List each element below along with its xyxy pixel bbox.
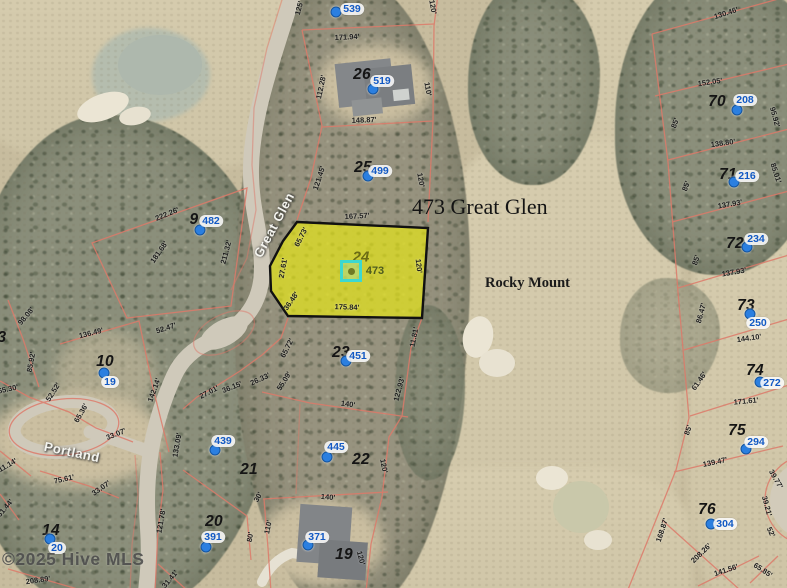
dimension-label: 133.09': [170, 432, 183, 458]
listing-pin[interactable]: [732, 105, 743, 116]
listing-pin-label[interactable]: 371: [305, 531, 329, 543]
dimension-label: 140': [320, 492, 335, 502]
dimension-label: 152.05': [697, 76, 723, 88]
dimension-label: 125': [293, 0, 305, 16]
dimension-label: 171.61': [733, 395, 758, 406]
listing-pin-label[interactable]: 391: [201, 531, 225, 543]
dimension-label: 30': [252, 490, 265, 503]
dimension-label: 27.01': [198, 383, 220, 401]
dimension-label: 141.56': [713, 562, 739, 578]
marker-dot-icon: [348, 268, 355, 275]
map-title: 473 Great Glen: [412, 194, 548, 220]
dimension-label: 65.72': [278, 337, 295, 359]
dimension-label: 27.61': [277, 257, 289, 279]
lot-number: 22: [352, 451, 370, 469]
dimension-label: 171.94': [334, 32, 359, 42]
dimension-label: 36.15': [221, 379, 243, 395]
listing-pin[interactable]: [322, 452, 333, 463]
dimension-label: 95.92': [768, 106, 782, 128]
listing-pin-label[interactable]: 272: [760, 377, 784, 389]
dimension-label: 139.47': [702, 455, 728, 469]
dimension-label: 120': [355, 550, 367, 566]
dimension-label: 65.73': [292, 226, 309, 248]
highlighted-parcel-marker-icon[interactable]: [340, 260, 362, 282]
dimension-label: 52.52': [44, 381, 63, 403]
listing-pin-label[interactable]: 208: [733, 94, 757, 106]
dimension-label: 26.33': [249, 371, 271, 388]
listing-pin-label[interactable]: 539: [340, 3, 364, 15]
dimension-label: 140': [340, 399, 355, 410]
listing-pin-label[interactable]: 294: [744, 436, 768, 448]
dimension-label: 85.01': [769, 162, 784, 184]
dimension-label: 122.93': [391, 376, 406, 402]
listing-pin-label[interactable]: 482: [199, 215, 223, 227]
listing-pin-label[interactable]: 234: [744, 233, 768, 245]
listing-pin-label[interactable]: 439: [211, 435, 235, 447]
dimension-label: 85': [680, 180, 692, 193]
dimension-label: 121.45': [311, 165, 327, 191]
dimension-label: 120': [378, 458, 390, 474]
dimension-label: 136.49': [78, 326, 104, 341]
dimension-label: 120': [427, 0, 438, 15]
dimension-label: 52.47': [155, 321, 177, 336]
plat-map-screenshot[interactable]: 3910141920212223252670717273747576125'12…: [0, 0, 787, 588]
dimension-label: 31.41': [160, 568, 180, 588]
listing-pin-label[interactable]: 445: [324, 441, 348, 453]
lot-number: 76: [698, 501, 716, 519]
dimension-label: 144.10': [736, 332, 762, 344]
mls-watermark: ©2025 Hive MLS: [2, 549, 144, 570]
listing-pin-label[interactable]: 250: [746, 317, 770, 329]
dimension-label: 120': [415, 172, 426, 188]
dimension-label: 65.30': [0, 382, 19, 395]
dimension-label: 75.61': [53, 472, 75, 485]
dimension-label: 110': [422, 81, 433, 96]
dimension-label: 85.92': [25, 351, 37, 373]
dimension-label: 86.47': [694, 302, 708, 324]
lot-number: 20: [205, 513, 223, 531]
region-label: Rocky Mount: [485, 275, 570, 292]
listing-pin-label[interactable]: 19: [101, 376, 119, 388]
dimension-label: 137.93': [717, 197, 743, 210]
dimension-label: 181.68': [148, 239, 170, 264]
dimension-label: 85': [690, 254, 702, 266]
dimension-label: 33.07': [105, 426, 127, 442]
dimension-label: 80': [245, 531, 256, 543]
dimension-label: 110': [262, 519, 274, 534]
street-name: Great Glen: [251, 190, 298, 260]
dimension-label: 148.87': [351, 115, 376, 125]
street-name: Portland: [43, 439, 102, 465]
dimension-label: 167.57': [344, 211, 369, 221]
dimension-label: 65.36': [72, 402, 90, 424]
dimension-label: 120': [414, 258, 425, 273]
dimension-label: 61.44': [0, 497, 15, 519]
dimension-label: 111.14': [0, 456, 19, 476]
dimension-label: 137.93': [721, 265, 747, 278]
dimension-label: 121.78': [154, 508, 167, 534]
listing-pin-label[interactable]: 499: [368, 165, 392, 177]
dimension-label: 208.26': [689, 541, 713, 565]
dimension-label: 98.08': [16, 305, 36, 327]
dimension-label: 208.89': [25, 574, 51, 586]
dimension-label: 85': [669, 117, 681, 130]
dimension-label: 33.07': [90, 478, 112, 497]
dimension-label: 11.81': [408, 326, 421, 348]
lot-number: 70: [708, 93, 726, 111]
dimension-label: 52': [765, 526, 777, 539]
dimension-label: 168.87': [654, 517, 670, 543]
listing-pin-label[interactable]: 216: [735, 170, 759, 182]
dimension-label: 36.48': [281, 290, 300, 312]
listing-pin-label[interactable]: 451: [346, 350, 370, 362]
dimension-label: 112.28': [314, 74, 328, 100]
listing-pin-label[interactable]: 304: [713, 518, 737, 530]
listing-pin[interactable]: [201, 542, 212, 553]
dimension-label: 55.09': [275, 370, 294, 392]
lot-number: 26: [353, 66, 371, 84]
lot-number: 19: [335, 546, 353, 564]
dimension-label: 222.26': [154, 205, 180, 223]
dimension-label: 142.14': [146, 377, 163, 403]
map-labels-layer: 3910141920212223252670717273747576125'12…: [0, 0, 787, 588]
dimension-label: 61.46': [689, 370, 708, 392]
lot-number: 75: [728, 422, 746, 440]
dimension-label: 138.80': [710, 137, 736, 149]
dimension-label: 85': [682, 424, 694, 436]
lot-number: 3: [0, 329, 6, 347]
dimension-label: 39.21': [760, 495, 774, 517]
highlighted-parcel-address: 473: [366, 265, 384, 277]
dimension-label: 211.32': [219, 239, 234, 265]
dimension-label: 130.46': [713, 5, 739, 21]
dimension-label: 65.85': [752, 561, 774, 580]
lot-number: 21: [240, 461, 258, 479]
dimension-label: 175.84': [334, 302, 359, 312]
dimension-label: 39.77': [767, 468, 785, 490]
listing-pin-label[interactable]: 519: [370, 75, 394, 87]
